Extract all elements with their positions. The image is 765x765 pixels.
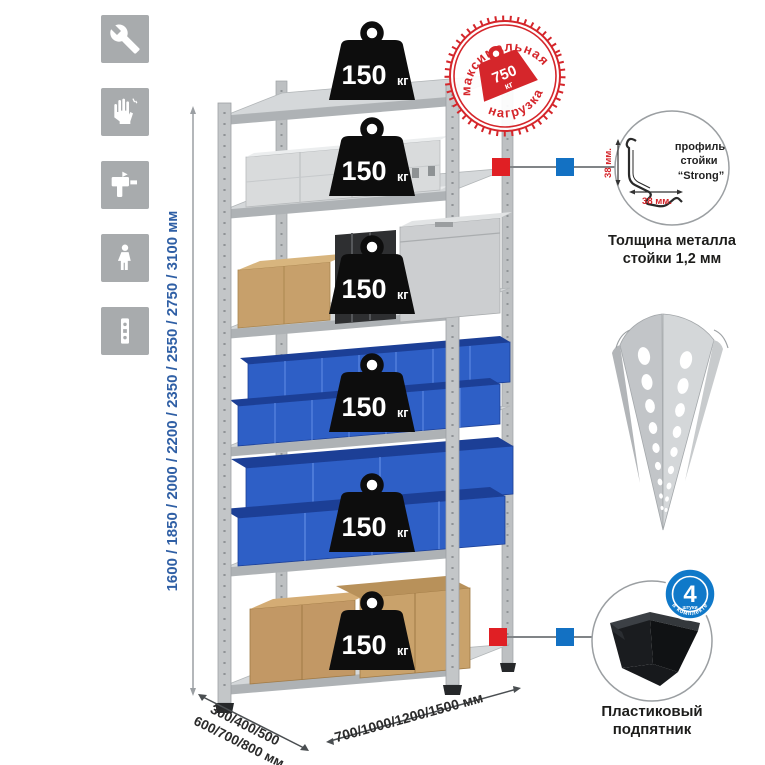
weight-value: 150 — [341, 274, 386, 304]
profile-caption-2: стойки 1,2 мм — [623, 251, 722, 267]
profile-dim-vertical-label: 38 мм. — [603, 148, 614, 178]
infographic-canvas: 150 кг 150 кг 150 кг 150 кг — [0, 0, 765, 765]
weight-unit: кг — [397, 644, 408, 658]
profile-dim-horizontal-label: 38 мм. — [642, 196, 672, 207]
weight-unit: кг — [397, 74, 408, 88]
weight-150kg: 150 кг — [329, 121, 415, 197]
upright-angle-image — [612, 314, 728, 530]
width-dimension: 700/1000/1200/1500 мм — [326, 686, 521, 745]
blue-marker-top — [556, 158, 574, 176]
foot-callout: 4 штуки в комплекте Пластиковый подпятни… — [592, 569, 716, 739]
shelving-diagram: 150 кг 150 кг 150 кг 150 кг — [0, 0, 765, 765]
foot-caption-1: Пластиковый — [601, 703, 702, 720]
blue-marker-bottom — [556, 628, 574, 646]
profile-label-3: “Strong” — [678, 170, 724, 182]
profile-label-2: стойки — [680, 155, 717, 167]
weight-value: 150 — [341, 60, 386, 90]
weight-value: 150 — [341, 512, 386, 542]
height-dimension-label: 1600 / 1850 / 2000 / 2200 / 2350 / 2550 … — [164, 211, 181, 592]
weight-unit: кг — [397, 406, 408, 420]
badge-value: 4 — [683, 581, 697, 608]
weight-unit: кг — [397, 170, 408, 184]
weight-unit: кг — [397, 526, 408, 540]
weight-unit: кг — [397, 288, 408, 302]
weight-value: 150 — [341, 392, 386, 422]
depth-dimension: 300/400/500 600/700/800 мм — [191, 694, 309, 765]
profile-label-1: профиль — [675, 141, 725, 153]
weight-value: 150 — [341, 156, 386, 186]
weight-value: 150 — [341, 630, 386, 660]
profile-callout: профиль стойки “Strong” 38 мм. 38 мм. То… — [603, 111, 737, 267]
profile-dim-vertical: 38 мм. — [603, 139, 621, 186]
red-marker-top — [492, 158, 510, 176]
badge-small-text: штуки — [682, 605, 697, 611]
weight-150kg: 150 кг — [329, 25, 415, 101]
quantity-badge: 4 штуки в комплекте — [665, 569, 716, 620]
red-marker-bottom — [489, 628, 507, 646]
profile-caption-1: Толщина металла — [608, 233, 737, 249]
foot-caption-2: подпятник — [613, 721, 692, 738]
aluminium-case-large — [400, 212, 512, 322]
width-dimension-label: 700/1000/1200/1500 мм — [333, 689, 485, 745]
foot-connector — [489, 628, 594, 646]
height-dimension: 1600 / 1850 / 2000 / 2200 / 2350 / 2550 … — [164, 106, 196, 696]
